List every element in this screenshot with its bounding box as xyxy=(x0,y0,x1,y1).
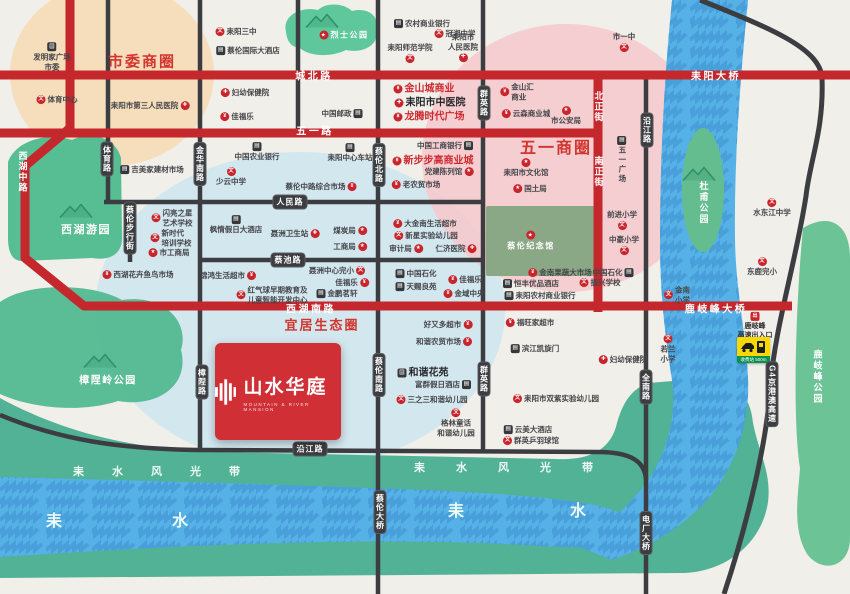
park-name: 西湖游园 xyxy=(61,221,111,237)
school-icon: 文 xyxy=(664,334,673,343)
poi: ▤蔡伦国际大酒店 xyxy=(216,46,280,56)
poi: ★工商局 xyxy=(333,242,367,252)
road-label: 蔡伦步行街 xyxy=(124,202,137,255)
poi: ¥老农贸市场 xyxy=(392,180,441,190)
star-icon: ★ xyxy=(464,168,473,177)
poi-label: 新步步高商业城 xyxy=(404,155,474,168)
poi-label: 仁济医院 xyxy=(436,244,466,254)
school-icon: 文 xyxy=(580,279,589,288)
mountain-icon xyxy=(305,14,339,29)
logo-row: 山水华庭 MOUNTAIN & RIVER MANSION xyxy=(215,372,341,412)
shop-icon: ¥ xyxy=(528,269,537,278)
poi-label: 富群假日酒店 xyxy=(415,380,460,390)
poi-label: 审计局 xyxy=(389,244,412,254)
poi-label: 云美大酒店 xyxy=(515,425,553,435)
poi: ✚妇幼保健院 xyxy=(599,355,648,365)
poi: ▤中国农业银行 xyxy=(235,142,280,162)
poi-label: 市一中 xyxy=(613,32,636,42)
mountain-icon xyxy=(59,204,93,219)
poi-label: 群英乒羽球馆 xyxy=(514,436,559,446)
hospital-icon: ✚ xyxy=(459,53,468,62)
road-label: 樟陧路 xyxy=(196,365,209,400)
zone-label: 市委商圈 xyxy=(108,51,176,72)
road-label: 北正街 xyxy=(593,91,606,123)
poi: ▤云美大酒店 xyxy=(504,425,553,435)
building-icon: ▤ xyxy=(346,143,355,152)
shop-icon: ¥ xyxy=(463,338,472,347)
poi: ¥好又多超市 xyxy=(424,320,473,330)
poi: 文耒阳三中 xyxy=(216,27,257,37)
road-label: 五一路 xyxy=(296,123,334,138)
park-label: 西湖游园 xyxy=(61,221,111,237)
location-map: 山水华庭 MOUNTAIN & RIVER MANSION 收费站 500m 市… xyxy=(0,0,850,594)
poi-label: 耒阳市中医院 xyxy=(406,97,466,110)
park-label: ★蔡伦纪念馆 xyxy=(507,231,555,252)
poi-label: 五一广场 xyxy=(617,146,627,184)
poi: ★耒阳市文化馆 xyxy=(504,158,549,178)
poi: ✚仁济医院 xyxy=(436,244,477,254)
road-label: 城北路 xyxy=(295,68,333,83)
school-icon: 文 xyxy=(356,267,365,276)
road-label: 蔡伦南路 xyxy=(373,353,386,397)
school-icon: 文 xyxy=(397,396,406,405)
poi-label: 蔡伦国际大酒店 xyxy=(227,46,280,56)
shop-icon: ¥ xyxy=(448,276,457,285)
poi-label: 锦鸿生活超市 xyxy=(200,271,245,281)
river-band-label: 耒水风光带 xyxy=(414,459,624,475)
school-icon: 文 xyxy=(620,43,629,52)
school-icon: 文 xyxy=(237,291,246,300)
poi-label: 云森商业城 xyxy=(513,109,551,119)
shop-icon: ¥ xyxy=(444,290,453,299)
school-icon: 文 xyxy=(216,28,225,37)
poi: 出鹿岐峰 高速出入口 xyxy=(738,312,773,340)
poi: ¥佳福乐 xyxy=(335,278,369,288)
poi-label: 老农贸市场 xyxy=(403,180,441,190)
poi: ¥龙腾时代广场 xyxy=(394,111,465,124)
poi: ¥福旺家超市 xyxy=(506,318,555,328)
poi: ▤滨江凯旋门 xyxy=(511,344,560,354)
poi-label: 耒阳中心车站 xyxy=(328,153,373,163)
poi: ★煤炭局 xyxy=(333,226,367,236)
school-icon: 文 xyxy=(227,167,236,176)
poi: ▤金鹏茗轩 xyxy=(317,289,358,299)
poi-label: 和谐农贸市场 xyxy=(416,337,461,347)
poi-label: 振兴学校 xyxy=(591,278,621,288)
project-subtitle: MOUNTAIN & RIVER MANSION xyxy=(243,402,341,412)
poi: 文格林童话 和谐幼儿园 xyxy=(437,408,475,438)
poi-label: 前进小学 xyxy=(607,210,637,220)
star-icon: ★ xyxy=(513,185,522,194)
building-icon: ▤ xyxy=(253,142,262,151)
poi-label: 中豪小学 xyxy=(609,235,639,245)
project-name: 山水华庭 xyxy=(243,372,341,399)
poi: ▤农村商业银行 xyxy=(394,19,450,29)
building-icon: ▤ xyxy=(511,345,520,354)
road-label: 电厂大桥 xyxy=(640,511,653,555)
poi: ▤中国石化 xyxy=(396,269,437,279)
poi: ¥锦鸿生活超市 xyxy=(200,271,256,281)
poi: 文中豪小学 xyxy=(609,235,639,255)
poi-label: 格林童话 和谐幼儿园 xyxy=(437,418,475,438)
building-icon: ▤ xyxy=(504,426,513,435)
building-icon: ▤ xyxy=(462,381,471,390)
poi-label: 煤炭局 xyxy=(333,226,356,236)
poi-label: 佳福乐 xyxy=(335,278,358,288)
poi: ▤枫情假日大酒店 xyxy=(210,215,263,235)
logo-bars-icon xyxy=(215,378,236,406)
poi: 文三之三和谐幼儿园 xyxy=(397,395,468,405)
poi-label: 新星实验幼儿园 xyxy=(405,231,458,241)
star-icon: ★ xyxy=(358,243,367,252)
poi: ¥蔡伦中路综合市场 xyxy=(286,182,357,192)
poi: 文若兰 小学 xyxy=(661,334,676,364)
poi: ✚耒阳市中医院 xyxy=(395,97,466,110)
poi-label: 中国石化 xyxy=(407,269,437,279)
poi: ★国土局 xyxy=(513,184,547,194)
school-icon: 文 xyxy=(37,96,46,105)
poi-label: 耒阳农村商业银行 xyxy=(516,291,576,301)
poi-label: 妇幼保健院 xyxy=(610,355,648,365)
poi: 文前进小学 xyxy=(607,210,637,230)
poi: ¥云森商业城 xyxy=(502,109,551,119)
hospital-icon: ✚ xyxy=(221,89,230,98)
poi: ¥金山汇 商业 xyxy=(500,82,534,102)
school-icon: 文 xyxy=(406,54,415,63)
poi: ¥佳福乐 xyxy=(220,112,254,122)
shop-icon: ¥ xyxy=(348,183,357,192)
poi: 文耒阳师范学院 xyxy=(388,43,433,63)
poi-label: 市公安局 xyxy=(551,116,581,126)
building-icon: ▤ xyxy=(216,47,225,56)
shop-icon: ¥ xyxy=(500,88,509,97)
school-icon: 文 xyxy=(394,232,403,241)
shop-icon: ¥ xyxy=(393,157,402,166)
school-icon: 文 xyxy=(513,395,522,404)
building-icon: ▤ xyxy=(232,215,241,224)
river-name-label: 耒水 xyxy=(448,497,692,521)
poi-label: 龙腾时代广场 xyxy=(405,111,465,124)
road-label: 蔡伦北路 xyxy=(373,143,386,187)
poi-label: 金鹏茗轩 xyxy=(328,289,358,299)
shop-icon: ¥ xyxy=(506,319,515,328)
building-icon: ▤ xyxy=(503,280,512,289)
mountain-icon xyxy=(83,354,117,369)
toll-distance-label: 收费站 500m xyxy=(737,356,770,363)
school-icon: 文 xyxy=(503,437,512,446)
poi: ✚妇幼保健院 xyxy=(221,88,270,98)
star-icon: ★ xyxy=(527,231,536,240)
zone-label: 五一商圈 xyxy=(520,134,592,158)
poi-label: 闪亮之星 艺术学校 xyxy=(163,208,193,228)
hospital-icon: ✚ xyxy=(468,245,477,254)
building-icon: ▤ xyxy=(317,290,326,299)
shop-icon: ¥ xyxy=(393,220,402,229)
shop-icon: ¥ xyxy=(502,110,511,119)
poi: ¥金南果蔬大市场 xyxy=(528,268,592,278)
poi-label: 工商局 xyxy=(333,242,356,252)
poi: ▤和谐花苑 xyxy=(398,367,449,380)
poi-label: 蔡伦中路综合市场 xyxy=(286,182,346,192)
school-icon: 文 xyxy=(618,221,627,230)
mountain-icon xyxy=(682,167,716,182)
building-icon: ▤ xyxy=(396,283,405,292)
poi-label: 耒阳三中 xyxy=(227,27,257,37)
building-icon: ▤ xyxy=(618,136,627,145)
poi-label: 大金南生活超市 xyxy=(404,219,457,229)
school-icon: 文 xyxy=(768,198,777,207)
poi-label: 金山汇 商业 xyxy=(511,82,534,102)
poi: ▤中国工商银行 xyxy=(417,141,473,151)
poi-label: 市工商局 xyxy=(160,248,190,258)
road-label: 西湖中路 xyxy=(17,151,30,193)
poi: 文振兴学校 xyxy=(580,278,621,288)
shop-icon: ¥ xyxy=(394,85,403,94)
poi-label: 好又多超市 xyxy=(424,320,462,330)
road-label: 体育路 xyxy=(101,142,114,177)
poi-label: 聂洲中心完小 xyxy=(309,266,354,276)
road-label: 沿江路 xyxy=(293,442,328,457)
dot-icon: 出 xyxy=(751,312,760,321)
poi: ¥金域中央 xyxy=(444,289,485,299)
poi: 文群英乒羽球馆 xyxy=(503,436,559,446)
poi: ¥和谐农贸市场 xyxy=(416,337,472,347)
hospital-icon: ✚ xyxy=(395,99,404,108)
school-icon: 文 xyxy=(152,214,161,223)
road-label: 人民路 xyxy=(273,195,308,210)
building-icon: ▤ xyxy=(464,142,473,151)
road-label: 南正街 xyxy=(593,156,606,188)
poi-label: 耒阳市第三人民医院 xyxy=(111,101,179,111)
park-label: 鹿岐峰公园 xyxy=(812,350,825,405)
poi: ▤吉美家建材市场 xyxy=(120,165,184,175)
building-icon: ▤ xyxy=(505,292,514,301)
poi: ▤天赐良苑 xyxy=(396,282,437,292)
poi: ▤恒丰优品酒店 xyxy=(503,279,559,289)
shop-icon: ¥ xyxy=(394,113,403,122)
park-label: ★烈士公园 xyxy=(320,30,369,41)
poi-label: 中国工商银行 xyxy=(417,141,462,151)
poi-label: 耒阳师范学院 xyxy=(388,43,433,53)
park-label: 杜甫公园 xyxy=(698,181,711,225)
poi: 文新时代 培训学校 xyxy=(151,228,192,248)
road-label: 蔡池路 xyxy=(271,253,306,268)
poi-label: 耒阳市双紫实验幼儿园 xyxy=(524,394,599,404)
poi: 文聂洲中心完小 xyxy=(309,266,365,276)
project-logo-card[interactable]: 山水华庭 MOUNTAIN & RIVER MANSION xyxy=(215,343,341,440)
poi-label: 中国邮政 xyxy=(322,109,352,119)
road-label: 群英路 xyxy=(478,86,491,121)
park-name: 烈士公园 xyxy=(331,30,369,41)
road-label: 鹿岐峰大桥 xyxy=(685,301,748,316)
poi-label: 耒阳市 人民医院 xyxy=(448,32,478,52)
poi-label: 金域中央 xyxy=(455,289,485,299)
building-icon: ▤ xyxy=(120,166,129,175)
poi-label: 佳福乐 xyxy=(231,112,254,122)
poi-label: 耒阳市文化馆 xyxy=(504,168,549,178)
poi: ¥新步步高商业城 xyxy=(393,155,474,168)
park-name: 杜甫公园 xyxy=(698,181,711,225)
poi: ▤中国邮政 xyxy=(322,109,363,119)
poi-label: 妇幼保健院 xyxy=(232,88,270,98)
shop-icon: ¥ xyxy=(463,321,472,330)
poi-label: 佳福乐 xyxy=(459,275,482,285)
building-icon: ▤ xyxy=(398,369,407,378)
park-name: 鹿岐峰公园 xyxy=(812,350,825,405)
toll-sign-pictogram xyxy=(737,337,770,356)
road-label: G4京港澳高速 xyxy=(766,361,779,427)
poi: ¥西湖花卉鱼鸟市场 xyxy=(103,270,174,280)
school-icon: 文 xyxy=(758,257,767,266)
road-label: 群英路 xyxy=(478,362,491,397)
poi: ▤耒阳农村商业银行 xyxy=(505,291,576,301)
star-icon: ★ xyxy=(562,106,571,115)
school-icon: 文 xyxy=(151,234,160,243)
poi: ✚耒阳市第三人民医院 xyxy=(111,101,190,111)
road-label: 西湖南路 xyxy=(286,301,336,316)
poi: ✚聂洲卫生站 xyxy=(271,229,320,239)
poi-label: 体育中心 xyxy=(48,95,78,105)
poi-label: 天赐良苑 xyxy=(407,282,437,292)
poi: 文东鹿完小 xyxy=(747,257,777,277)
poi-label: 发明家广场 市委 xyxy=(33,52,71,72)
poi: ▤五一广场 xyxy=(617,136,627,184)
school-icon: 文 xyxy=(664,291,673,300)
road-label: 沿江路 xyxy=(641,113,654,148)
poi: ★党建陈列馆 xyxy=(425,167,474,177)
poi-label: 农村商业银行 xyxy=(405,19,450,29)
poi: ▤发明家广场 市委 xyxy=(33,42,71,72)
poi-label: 滨江凯旋门 xyxy=(522,344,560,354)
poi-label: 新时代 培训学校 xyxy=(162,228,192,248)
poi: ★市公安局 xyxy=(551,106,581,126)
poi-label: 西湖花卉鱼鸟市场 xyxy=(114,270,174,280)
park-name: 樟陧岭公园 xyxy=(79,372,137,387)
poi: ¥佳福乐 xyxy=(448,275,482,285)
school-icon: 文 xyxy=(620,246,629,255)
star-icon: ★ xyxy=(320,31,329,40)
poi: 文体育中心 xyxy=(37,95,78,105)
building-icon: ▤ xyxy=(394,20,403,29)
poi-label: 水东江中学 xyxy=(753,208,791,218)
road-label: 蔡伦大桥 xyxy=(374,490,387,534)
road-label: 金华南路 xyxy=(194,142,207,186)
poi-label: 三之三和谐幼儿园 xyxy=(408,395,468,405)
poi-label: 金山城商业 xyxy=(405,83,455,96)
river-name-label: 耒水 xyxy=(46,507,298,531)
star-icon: ★ xyxy=(149,249,158,258)
poi-label: 东鹿完小 xyxy=(747,267,777,277)
poi: 文闪亮之星 艺术学校 xyxy=(152,208,193,228)
building-icon: ▤ xyxy=(354,110,363,119)
poi-label: 吉美家建材市场 xyxy=(131,165,184,175)
poi: 文新星实验幼儿园 xyxy=(394,231,458,241)
poi: ▤中国石化 xyxy=(593,268,634,278)
poi: 文少云中学 xyxy=(216,167,246,187)
star-icon: ★ xyxy=(414,245,423,254)
park-label: 樟陧岭公园 xyxy=(79,372,137,387)
poi-label: 恒丰优品酒店 xyxy=(514,279,559,289)
star-icon: ★ xyxy=(358,227,367,236)
poi-label: 聂洲卫生站 xyxy=(271,229,309,239)
poi: 文市一中 xyxy=(613,32,636,52)
poi-label: 和谐花苑 xyxy=(409,367,449,380)
car-toll-icon xyxy=(740,340,767,354)
river-band-label: 耒水风光带 xyxy=(73,463,268,479)
building-icon: ▤ xyxy=(625,269,634,278)
poi: ★审计局 xyxy=(389,244,423,254)
school-icon: 文 xyxy=(435,30,444,39)
poi-label: 金南果蔬大市场 xyxy=(539,268,592,278)
school-icon: 文 xyxy=(452,408,461,417)
poi: ¥金山城商业 xyxy=(394,83,455,96)
poi-label: 中国农业银行 xyxy=(235,152,280,162)
park-name: 蔡伦纪念馆 xyxy=(507,241,555,252)
shop-icon: ¥ xyxy=(360,279,369,288)
poi-label: 若兰 小学 xyxy=(661,344,676,364)
road-label: 耒阳大桥 xyxy=(691,68,741,83)
poi: ✚耒阳市 人民医院 xyxy=(448,32,478,62)
shop-icon: ¥ xyxy=(392,181,401,190)
building-icon: ▤ xyxy=(396,270,405,279)
poi: ▤富群假日酒店 xyxy=(415,380,471,390)
road-label: 全南路 xyxy=(640,370,653,405)
poi-label: 枫情假日大酒店 xyxy=(210,225,263,235)
shop-icon: ¥ xyxy=(103,271,112,280)
poi: 文水东江中学 xyxy=(753,198,791,218)
zone-label: 宜居生态圈 xyxy=(284,315,359,334)
shop-icon: ¥ xyxy=(220,113,229,122)
poi: 文耒阳市双紫实验幼儿园 xyxy=(513,394,599,404)
star-icon: ★ xyxy=(522,158,531,167)
poi-label: 福旺家超市 xyxy=(517,318,555,328)
poi: ¥大金南生活超市 xyxy=(393,219,457,229)
poi-label: 党建陈列馆 xyxy=(425,167,463,177)
poi-label: 国土局 xyxy=(524,184,547,194)
toll-gate-sign: 收费站 500m xyxy=(737,337,770,363)
poi-label: 少云中学 xyxy=(216,177,246,187)
hospital-icon: ✚ xyxy=(180,102,189,111)
hospital-icon: ✚ xyxy=(599,356,608,365)
poi-label: 中国石化 xyxy=(593,268,623,278)
poi: ▤耒阳中心车站 xyxy=(328,143,373,163)
hospital-icon: ✚ xyxy=(310,230,319,239)
building-icon: ▤ xyxy=(48,42,57,51)
poi: ★市工商局 xyxy=(149,248,190,258)
shop-icon: ¥ xyxy=(247,272,256,281)
